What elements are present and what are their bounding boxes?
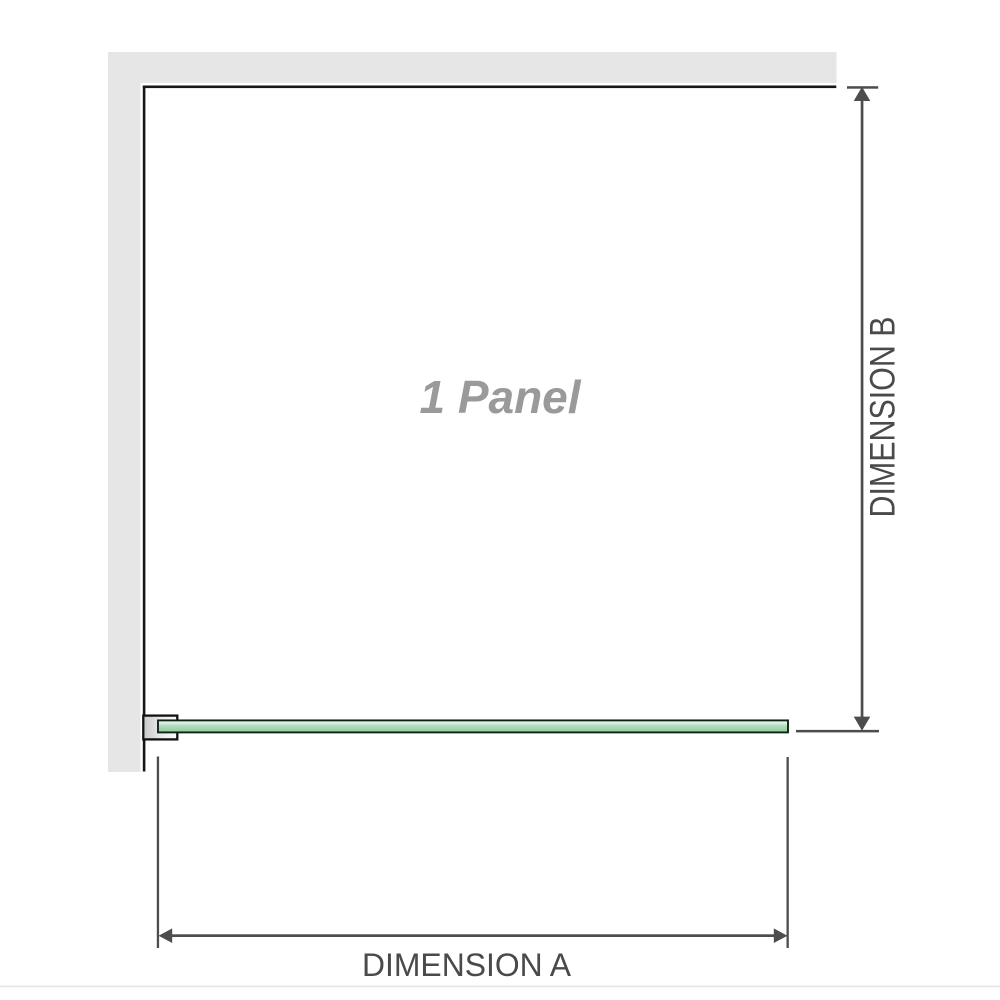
svg-text:DIMENSION B: DIMENSION B xyxy=(864,317,903,518)
svg-text:1 Panel: 1 Panel xyxy=(419,371,581,423)
svg-text:DIMENSION A: DIMENSION A xyxy=(362,947,572,983)
